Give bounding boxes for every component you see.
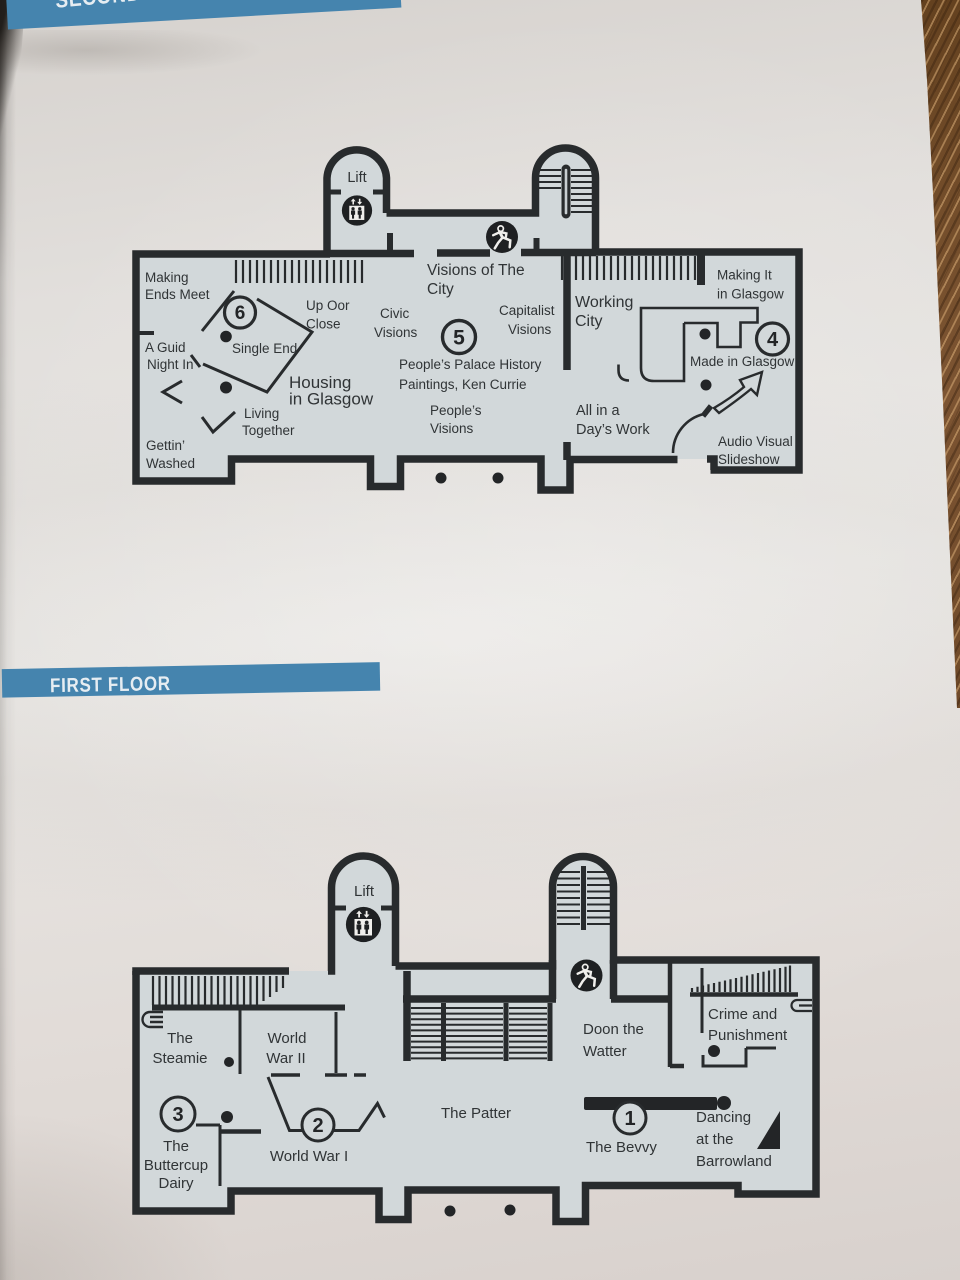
svg-text:Visions: Visions bbox=[374, 325, 418, 340]
svg-text:Civic: Civic bbox=[380, 306, 409, 321]
svg-text:Made in Glasgow: Made in Glasgow bbox=[690, 354, 795, 369]
svg-text:Gettin’: Gettin’ bbox=[146, 438, 185, 453]
svg-text:Buttercup: Buttercup bbox=[144, 1157, 208, 1174]
svg-text:The: The bbox=[167, 1030, 193, 1047]
svg-text:Visions: Visions bbox=[508, 322, 552, 337]
svg-text:The: The bbox=[163, 1138, 189, 1155]
svg-text:Paintings, Ken Currie: Paintings, Ken Currie bbox=[399, 377, 527, 392]
svg-text:in Glasgow: in Glasgow bbox=[289, 390, 374, 409]
svg-text:FIRST FLOOR: FIRST FLOOR bbox=[50, 672, 171, 697]
svg-text:Making: Making bbox=[145, 270, 189, 285]
svg-text:Day’s Work: Day’s Work bbox=[576, 422, 650, 438]
svg-text:The Bevvy: The Bevvy bbox=[586, 1139, 657, 1156]
svg-text:Lift: Lift bbox=[347, 170, 366, 186]
svg-text:The Patter: The Patter bbox=[441, 1105, 511, 1122]
svg-text:6: 6 bbox=[235, 303, 246, 324]
svg-text:Together: Together bbox=[242, 423, 295, 438]
svg-text:Watter: Watter bbox=[583, 1043, 627, 1060]
svg-text:Single End: Single End bbox=[232, 341, 297, 356]
svg-text:Ends Meet: Ends Meet bbox=[145, 287, 210, 302]
svg-text:People’s Palace History: People’s Palace History bbox=[399, 357, 542, 372]
svg-text:City: City bbox=[575, 313, 603, 330]
svg-text:4: 4 bbox=[767, 329, 779, 351]
svg-text:Crime and: Crime and bbox=[708, 1006, 777, 1023]
svg-text:Visions: Visions bbox=[430, 421, 474, 436]
svg-text:Close: Close bbox=[306, 317, 341, 332]
svg-text:Punishment: Punishment bbox=[708, 1027, 788, 1044]
svg-text:Visions of The: Visions of The bbox=[427, 262, 525, 279]
svg-text:Working: Working bbox=[575, 294, 633, 311]
svg-text:War II: War II bbox=[266, 1050, 305, 1067]
svg-text:Doon the: Doon the bbox=[583, 1021, 644, 1038]
svg-text:Steamie: Steamie bbox=[152, 1050, 207, 1067]
svg-text:A Guid: A Guid bbox=[145, 340, 186, 355]
svg-text:1: 1 bbox=[624, 1108, 635, 1130]
svg-text:Lift: Lift bbox=[354, 883, 375, 900]
svg-text:3: 3 bbox=[172, 1104, 183, 1126]
svg-text:All in a: All in a bbox=[576, 403, 620, 419]
svg-text:Dancing: Dancing bbox=[696, 1109, 751, 1126]
svg-text:Slideshow: Slideshow bbox=[718, 452, 780, 467]
svg-text:People’s: People’s bbox=[430, 403, 482, 418]
svg-text:World: World bbox=[268, 1030, 307, 1047]
svg-text:5: 5 bbox=[453, 327, 465, 350]
svg-text:at the: at the bbox=[696, 1131, 734, 1148]
svg-text:World War I: World War I bbox=[270, 1148, 348, 1165]
svg-text:2: 2 bbox=[312, 1115, 323, 1137]
svg-text:in Glasgow: in Glasgow bbox=[717, 287, 784, 302]
svg-text:Barrowland: Barrowland bbox=[696, 1153, 772, 1170]
svg-text:Audio Visual: Audio Visual bbox=[718, 434, 793, 449]
svg-text:Living: Living bbox=[244, 406, 279, 421]
svg-text:Washed: Washed bbox=[146, 456, 195, 471]
svg-text:Up Oor: Up Oor bbox=[306, 298, 350, 313]
svg-text:Capitalist: Capitalist bbox=[499, 303, 555, 318]
svg-text:Making It: Making It bbox=[717, 268, 772, 283]
svg-text:Dairy: Dairy bbox=[158, 1175, 194, 1192]
svg-text:Night In: Night In bbox=[147, 357, 194, 372]
svg-text:City: City bbox=[427, 281, 454, 298]
